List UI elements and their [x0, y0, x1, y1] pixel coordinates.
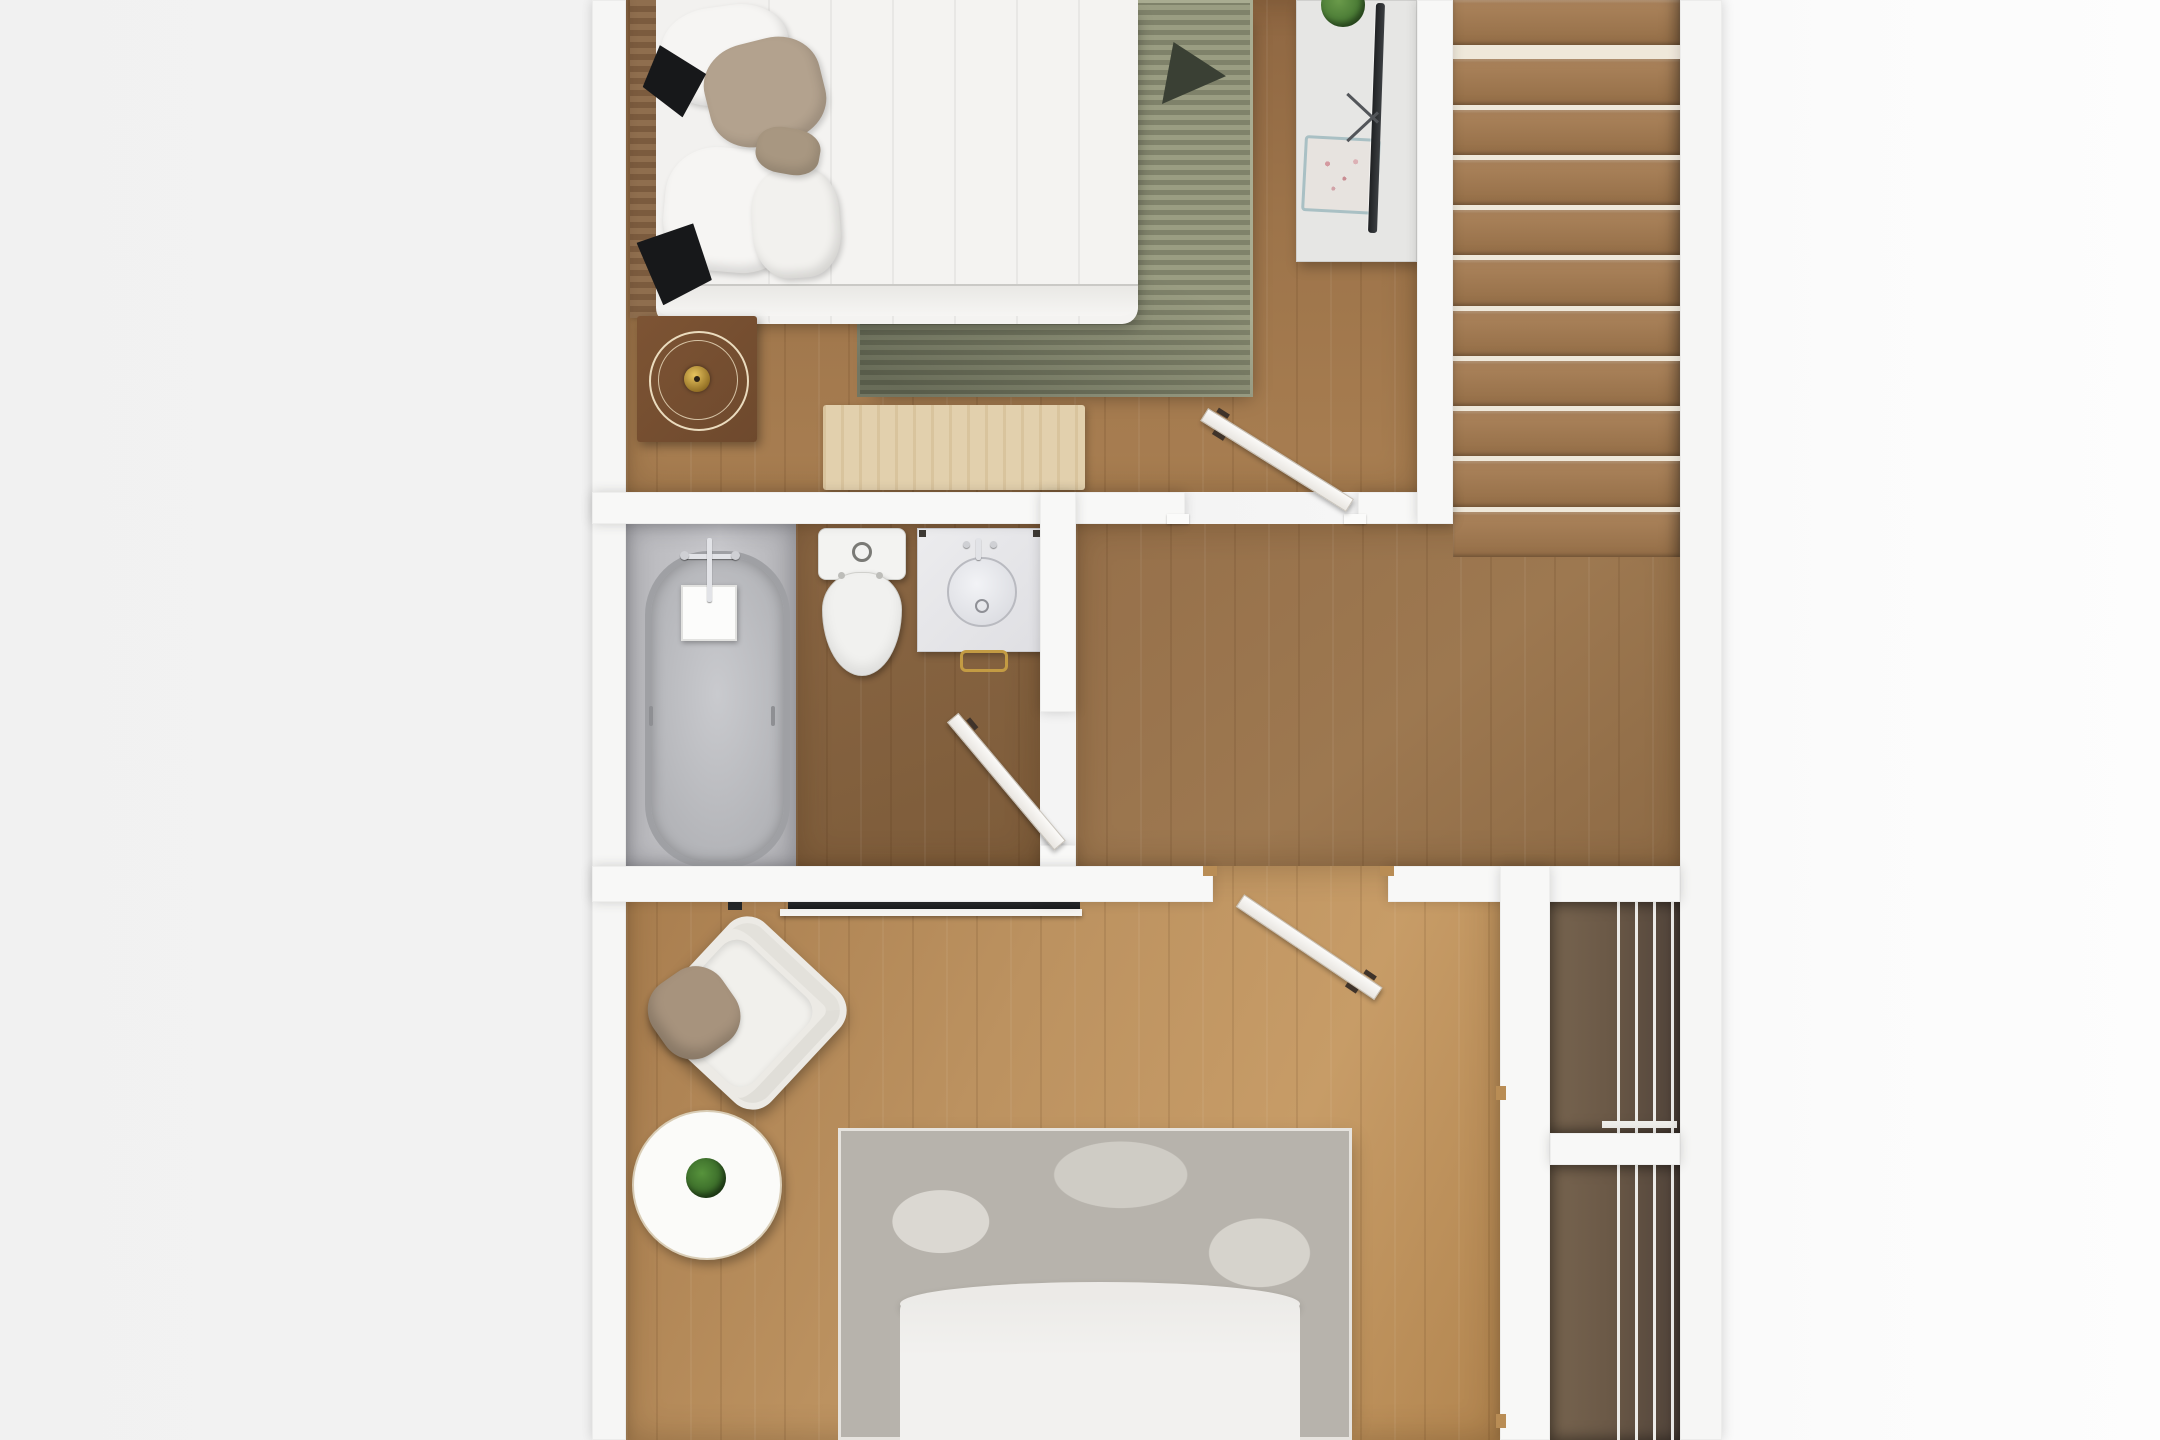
- sink-bowl: [947, 557, 1017, 627]
- seat-hinge: [838, 572, 845, 579]
- wall-closet-left: [1500, 866, 1550, 1440]
- tub-handle: [649, 706, 653, 726]
- door-hinge-tab: [1380, 866, 1394, 876]
- closet-shelf-bar: [1602, 1121, 1677, 1128]
- floor-plan-canvas: [0, 0, 2160, 1440]
- gold-clock: [684, 366, 710, 392]
- pillow-white: [748, 165, 843, 281]
- media-shelf: [780, 909, 1082, 916]
- sink-faucet: [976, 538, 981, 560]
- wall-closet-divider: [1550, 1133, 1680, 1165]
- wall-bracket: [1496, 1086, 1506, 1100]
- faucet-knob: [680, 551, 689, 560]
- vanity-pin: [1033, 530, 1040, 537]
- plant-icon: [686, 1158, 726, 1198]
- nightstand: [637, 316, 757, 442]
- closet-lower-shelf: [1550, 1165, 1680, 1440]
- flush-button: [852, 542, 872, 562]
- wood-bench-mat: [823, 405, 1085, 490]
- sink-knob: [963, 541, 970, 548]
- faucet-knob: [731, 551, 740, 560]
- wall-right-outer: [1680, 0, 1722, 1440]
- staircase: [1453, 0, 1680, 557]
- wall-bedroom-top-bottom-left: [592, 492, 1185, 524]
- stair-tread: [1453, 311, 1680, 356]
- wall-left-outer: [592, 0, 626, 1440]
- landing-floor: [1076, 524, 1680, 866]
- stair-tread: [1453, 411, 1680, 456]
- stair-tread: [1453, 361, 1680, 406]
- vanity-pin: [919, 530, 926, 537]
- door-hinge-tab: [1203, 866, 1217, 876]
- stair-tread: [1453, 461, 1680, 506]
- stair-tread: [1453, 210, 1680, 255]
- sink-drain: [975, 599, 989, 613]
- plant-icon: [1321, 0, 1365, 27]
- door-strike-tab: [1344, 514, 1366, 524]
- closet-slats: [1602, 1165, 1677, 1440]
- closet-slats: [1602, 902, 1677, 1133]
- wall-bracket: [1496, 1414, 1506, 1428]
- wall-landing-bottom-left: [592, 866, 1213, 902]
- stair-tread: [1453, 160, 1680, 205]
- seat-hinge: [876, 572, 883, 579]
- bath-faucet-stem: [707, 538, 712, 602]
- stair-tread: [1453, 512, 1680, 557]
- media-console: [1296, 0, 1417, 262]
- bed-bottom: [900, 1300, 1300, 1440]
- wall-bathroom-right-upper: [1040, 492, 1076, 712]
- duvet-fold: [656, 284, 1138, 316]
- stair-tread: [1453, 59, 1680, 104]
- stair-tread: [1453, 110, 1680, 155]
- tub-handle: [771, 706, 775, 726]
- wall-stairs-left: [1417, 0, 1453, 524]
- stair-tread: [1453, 260, 1680, 305]
- gold-towel-ring: [960, 650, 1008, 672]
- closet-upper-shelf: [1550, 902, 1680, 1133]
- round-side-table: [632, 1110, 782, 1260]
- duvet: [768, 0, 1138, 324]
- sink-knob: [990, 541, 997, 548]
- door-strike-tab: [1167, 514, 1189, 524]
- stair-tread: [1453, 0, 1680, 45]
